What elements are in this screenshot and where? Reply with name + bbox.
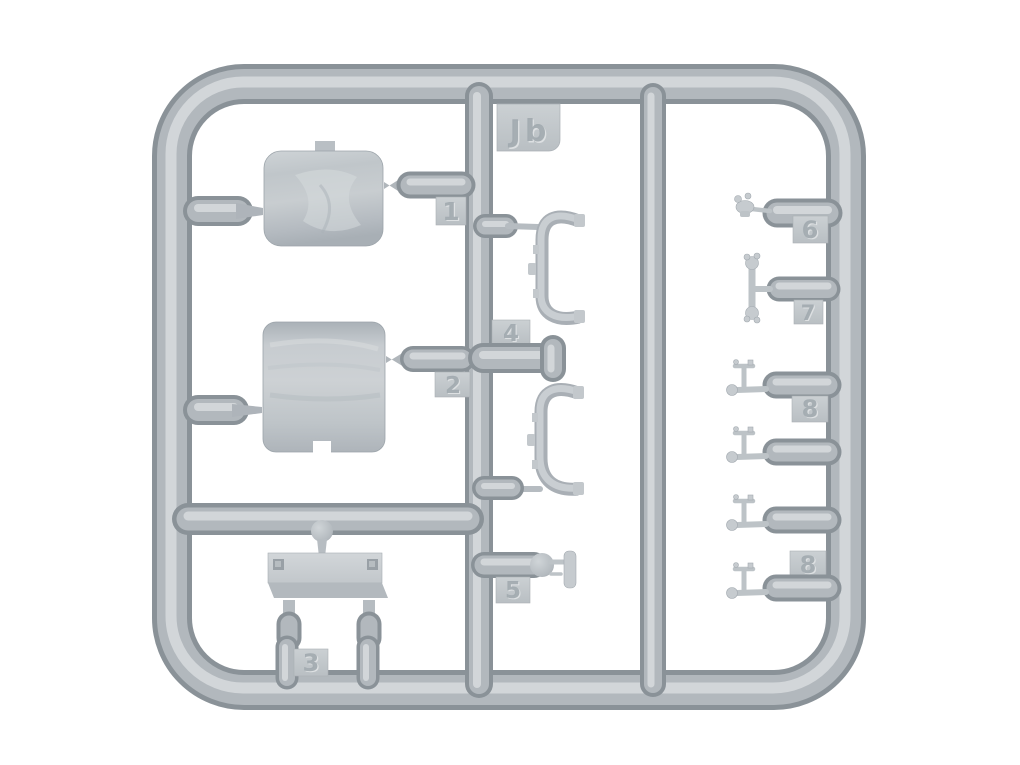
part-number-tag-7: 7 7 bbox=[794, 300, 823, 326]
part-8-lever-1 bbox=[727, 360, 829, 396]
part-4-upper-tip-top bbox=[574, 214, 585, 227]
part-5-body bbox=[564, 551, 576, 588]
part-3-plate-flange bbox=[268, 583, 388, 598]
part-4-lower-tip-bottom bbox=[573, 482, 584, 495]
part-2-bottom-notch bbox=[313, 441, 331, 453]
part-8-lever-3 bbox=[727, 495, 829, 531]
part-number-tag-3: 3 3 bbox=[294, 649, 328, 678]
tag-label-1: 1 bbox=[442, 197, 459, 226]
sprue-svg: Jb Jb 1 1 2 2 bbox=[0, 0, 1020, 765]
part-3-leg-left bbox=[285, 600, 289, 678]
part-4-curved-bracket-upper bbox=[485, 214, 585, 323]
sprue-id-label: Jb bbox=[508, 114, 551, 149]
part-number-tag-2: 2 2 bbox=[435, 372, 470, 400]
tag-label-5: 5 bbox=[505, 578, 521, 604]
sprue-photo: Jb Jb 1 1 2 2 bbox=[0, 0, 1020, 765]
part-3-gate-ball bbox=[311, 520, 333, 542]
part-4-lower-tip-top bbox=[573, 386, 584, 399]
tag-label-2: 2 bbox=[445, 373, 461, 399]
part-2-tank bbox=[198, 322, 462, 453]
part-3-leg-right bbox=[366, 600, 369, 678]
part-number-tag-8a: 8 8 bbox=[792, 395, 828, 424]
part-4-curved-bracket-lower bbox=[484, 386, 584, 495]
part-number-tag-6: 6 6 bbox=[793, 216, 828, 245]
part-4-upper-tip-bottom bbox=[574, 310, 585, 323]
part-3-plate bbox=[268, 553, 382, 583]
part-1-tank bbox=[198, 141, 462, 246]
runner-vertical-center-left bbox=[477, 96, 479, 684]
tag-label-8a: 8 bbox=[802, 395, 819, 423]
gate-thin bbox=[508, 226, 538, 227]
tag-label-7: 7 bbox=[801, 301, 816, 325]
tag-label-3: 3 bbox=[303, 649, 320, 677]
sprue-id-tag: Jb Jb bbox=[497, 104, 560, 151]
tag-label-6: 6 bbox=[802, 216, 819, 244]
part-8-lever-2 bbox=[727, 427, 829, 463]
part-number-tag-5: 5 5 bbox=[496, 577, 530, 605]
part-6-fitting bbox=[735, 193, 829, 217]
runner-part-4-middle bbox=[483, 348, 553, 369]
part-4-upper-outline bbox=[542, 217, 579, 318]
runner-horizontal-mid-left bbox=[188, 516, 468, 519]
part-number-tag-1: 1 1 bbox=[436, 197, 466, 227]
runner-vertical-center-right bbox=[651, 96, 653, 684]
